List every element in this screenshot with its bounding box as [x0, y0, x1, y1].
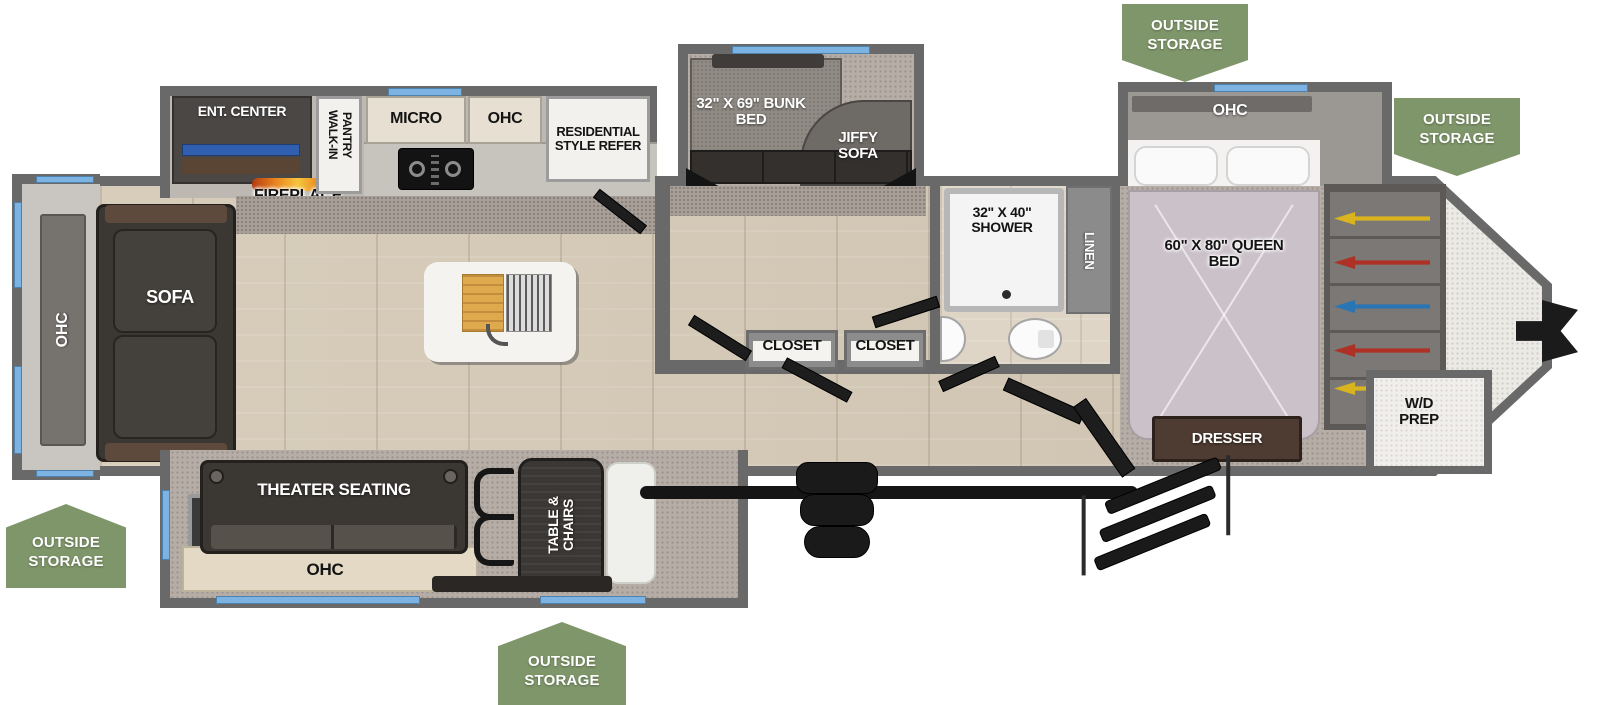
linen-label: LINEN [1074, 206, 1104, 296]
sofa-cushion [113, 229, 217, 333]
toilet-seat [1038, 330, 1054, 348]
kitchen-island [424, 262, 576, 362]
sofa-trim-top [105, 205, 227, 223]
badge-label: OUTSIDE STORAGE [507, 653, 617, 691]
bunkroom-carpet-strip [670, 186, 926, 216]
rear-ohc-label: OHC [45, 295, 81, 365]
bunk-headboard [712, 54, 824, 68]
sink-grate-icon [506, 274, 552, 332]
micro-label: MICRO [370, 108, 462, 130]
kitchen-carpet-strip [236, 196, 657, 234]
bedroom-ohc-label: OHC [1200, 100, 1260, 122]
kitchen-ohc-label: OHC [470, 108, 540, 130]
walk-in-pantry-label: WALK-IN PANTRY [320, 102, 358, 168]
bunkroom-left-wall [655, 176, 670, 374]
window-strip [732, 46, 870, 54]
shower-label: 32" X 40" SHOWER [952, 200, 1052, 240]
window-strip [36, 176, 94, 183]
table-chairs-label: TABLE & CHAIRS [526, 485, 596, 565]
burner-icon [445, 161, 461, 177]
entry-step [796, 462, 878, 494]
refer-label: RESIDENTIAL STYLE REFER [550, 104, 646, 174]
dining-chair-icon [474, 514, 514, 566]
entry-step [804, 526, 870, 558]
fifth-wheel-floorplan: OHC SOFA ENT. CENTER FIREPLACE WALK-IN P… [0, 0, 1600, 705]
sofa-cushion [113, 335, 217, 439]
step-rail [1082, 495, 1086, 575]
theater-ohc-label: OHC [290, 558, 360, 582]
outside-storage-badge: OUTSIDE STORAGE [1122, 4, 1248, 82]
window-strip [1214, 84, 1308, 92]
outside-storage-badge: OUTSIDE STORAGE [498, 622, 626, 705]
ent-center-shelf [182, 158, 300, 174]
step-rail [1226, 455, 1230, 535]
badge-label: OUTSIDE STORAGE [1402, 111, 1512, 149]
seat-edge [211, 525, 457, 549]
jiffy-sofa-label: JIFFY SOFA [826, 128, 890, 164]
sofa-label: SOFA [130, 286, 210, 310]
closet-left-label: CLOSET [752, 336, 832, 356]
wd-prep-label: W/D PREP [1388, 392, 1450, 432]
shower-drain-icon [1002, 290, 1011, 299]
window-strip [14, 202, 22, 288]
toilet-icon [1008, 318, 1062, 360]
window-strip [388, 88, 462, 96]
badge-label: OUTSIDE STORAGE [11, 534, 121, 572]
pillow-icon [1134, 146, 1218, 186]
queen-bed-label: 60" X 80" QUEEN BED [1154, 234, 1294, 274]
window-strip [36, 470, 94, 477]
outside-storage-badge: OUTSIDE STORAGE [1394, 98, 1520, 176]
table-base-shelf [432, 576, 612, 592]
badge-label: OUTSIDE STORAGE [1130, 17, 1240, 55]
window-strip [162, 490, 170, 560]
sofa [96, 204, 236, 462]
burner-icon [409, 161, 425, 177]
entry-step [800, 494, 874, 526]
window-strip [216, 596, 420, 604]
faucet-icon [486, 324, 508, 346]
pillow-icon [1226, 146, 1310, 186]
theater-seating [200, 460, 468, 554]
theater-seating-label: THEATER SEATING [214, 478, 454, 502]
dresser-label: DRESSER [1160, 428, 1294, 450]
closet-right-label: CLOSET [848, 336, 922, 356]
bunk-bed-label: 32" X 69" BUNK BED [696, 92, 806, 132]
tv-icon [182, 144, 300, 156]
dining-chair-icon [474, 468, 514, 520]
burner-knobs [431, 155, 439, 185]
dining-bench [606, 462, 656, 584]
ent-center-label: ENT. CENTER [180, 102, 304, 122]
queen-bed [1128, 190, 1320, 440]
cooktop-icon [398, 148, 474, 190]
undercarriage-bar [640, 486, 1138, 499]
window-strip [14, 366, 22, 454]
window-strip [540, 596, 646, 604]
outside-storage-badge: OUTSIDE STORAGE [6, 504, 126, 588]
